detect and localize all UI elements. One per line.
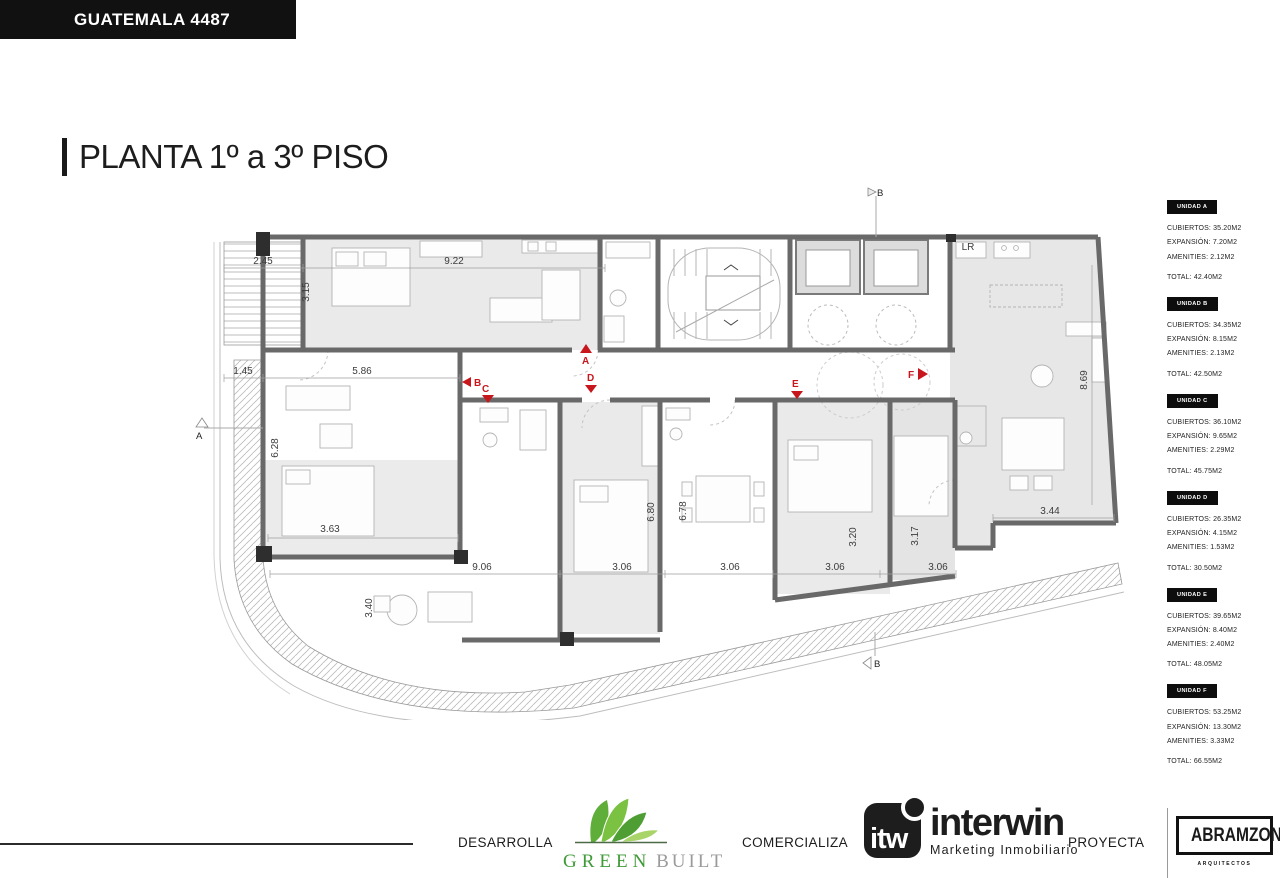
section-b-bottom: B — [874, 659, 880, 670]
interwin-logo: itw interwin Marketing Inmobiliario — [864, 803, 1079, 858]
unit-badge: UNIDAD D — [1167, 491, 1218, 505]
section-a-left: A — [196, 431, 203, 442]
unit-expansion: EXPANSIÓN: 9.65M2 — [1167, 430, 1272, 444]
dim-label: 3.06 — [825, 562, 845, 573]
dim-label: 3.17 — [910, 526, 921, 546]
unit-badge: UNIDAD A — [1167, 200, 1217, 214]
marker-e: E — [792, 379, 799, 390]
plan-sheet: { "header": { "address": "GUATEMALA 4487… — [0, 0, 1280, 878]
unit-expansion: EXPANSIÓN: 8.15M2 — [1167, 333, 1272, 347]
dim-label: 3.20 — [848, 527, 859, 547]
unit-expansion: EXPANSIÓN: 7.20M2 — [1167, 236, 1272, 250]
abramzon-name: ABRAMZON — [1191, 825, 1280, 847]
unit-badge: UNIDAD B — [1167, 297, 1218, 311]
unit-cubiertos: CUBIERTOS: 39.65M2 — [1167, 610, 1272, 624]
dim-label: 3.44 — [1040, 506, 1060, 517]
greenbuilt-logo: GREEN BUILT — [563, 796, 728, 873]
unit-total: TOTAL: 48.05M2 — [1167, 661, 1272, 668]
floor-plan-svg: 2.45 9.22 3.15 1.45 5.86 6.28 3.63 3.40 … — [190, 180, 1150, 720]
sheet-title-wrap: PLANTA 1º a 3º PISO — [62, 138, 388, 176]
footer-divider — [1167, 808, 1168, 878]
project-address: GUATEMALA 4487 — [0, 10, 230, 30]
unit-block-b: UNIDAD B CUBIERTOS: 34.35M2 EXPANSIÓN: 8… — [1167, 292, 1272, 378]
unit-cubiertos: CUBIERTOS: 53.25M2 — [1167, 706, 1272, 720]
marker-f: F — [908, 370, 914, 381]
unit-amenities: AMENITIES: 1.53M2 — [1167, 541, 1272, 555]
unit-badge: UNIDAD E — [1167, 588, 1217, 602]
unit-expansion: EXPANSIÓN: 8.40M2 — [1167, 624, 1272, 638]
elevators — [796, 240, 930, 418]
dim-label: 6.80 — [646, 502, 657, 522]
interwin-name: interwin — [930, 803, 1079, 843]
itw-dot-icon — [901, 794, 928, 821]
abramzon-box: ABRAMZON — [1176, 816, 1273, 855]
proyecta-label: PROYECTA — [1068, 835, 1144, 850]
desarrolla-label: DESARROLLA — [458, 835, 553, 850]
floor-plan: 2.45 9.22 3.15 1.45 5.86 6.28 3.63 3.40 … — [190, 180, 1150, 720]
unit-amenities: AMENITIES: 2.13M2 — [1167, 347, 1272, 361]
abramzon-subtitle: ARQUITECTOS — [1176, 861, 1273, 867]
interwin-tagline: Marketing Inmobiliario — [930, 843, 1079, 857]
unit-amenities: AMENITIES: 2.40M2 — [1167, 638, 1272, 652]
unit-badge: UNIDAD F — [1167, 684, 1217, 698]
built-word: BUILT — [656, 851, 725, 872]
marker-a: A — [582, 356, 589, 367]
unit-total: TOTAL: 42.40M2 — [1167, 274, 1272, 281]
abramzon-logo: ABRAMZON ARQUITECTOS — [1176, 816, 1273, 867]
sheet-title: PLANTA 1º a 3º PISO — [79, 138, 388, 176]
itw-icon: itw — [864, 803, 921, 858]
dim-label: 6.78 — [678, 501, 689, 521]
unit-block-f: UNIDAD F CUBIERTOS: 53.25M2 EXPANSIÓN: 1… — [1167, 679, 1272, 765]
unit-area-sidebar: UNIDAD A CUBIERTOS: 35.20M2 EXPANSIÓN: 7… — [1167, 195, 1272, 776]
unit-cubiertos: CUBIERTOS: 35.20M2 — [1167, 222, 1272, 236]
unit-block-d: UNIDAD D CUBIERTOS: 26.35M2 EXPANSIÓN: 4… — [1167, 486, 1272, 572]
unit-cubiertos: CUBIERTOS: 26.35M2 — [1167, 513, 1272, 527]
dim-label: 3.15 — [301, 282, 312, 302]
unit-block-a: UNIDAD A CUBIERTOS: 35.20M2 EXPANSIÓN: 7… — [1167, 195, 1272, 281]
dim-label: 1.45 — [233, 366, 253, 377]
unit-amenities: AMENITIES: 3.33M2 — [1167, 735, 1272, 749]
marker-d: D — [587, 373, 594, 384]
unit-total: TOTAL: 42.50M2 — [1167, 371, 1272, 378]
dim-label: 6.28 — [270, 438, 281, 458]
green-word: GREEN — [563, 851, 651, 872]
unit-expansion: EXPANSIÓN: 13.30M2 — [1167, 721, 1272, 735]
stair-core — [668, 248, 780, 340]
unit-badge: UNIDAD C — [1167, 394, 1218, 408]
footer-rule — [0, 843, 413, 845]
interwin-wordmark: interwin Marketing Inmobiliario — [930, 803, 1079, 857]
dim-label: 9.22 — [444, 256, 464, 267]
greenbuilt-wordmark: GREEN BUILT — [563, 851, 728, 873]
greenbuilt-leaves-icon — [563, 796, 683, 844]
dim-label: 3.06 — [720, 562, 740, 573]
project-address-banner: GUATEMALA 4487 — [0, 0, 296, 39]
unit-total: TOTAL: 66.55M2 — [1167, 758, 1272, 765]
dim-label: 3.63 — [320, 524, 340, 535]
comercializa-label: COMERCIALIZA — [742, 835, 848, 850]
marker-c: C — [482, 384, 489, 395]
unit-total: TOTAL: 45.75M2 — [1167, 468, 1272, 475]
title-accent-bar — [62, 138, 67, 176]
unit-expansion: EXPANSIÓN: 4.15M2 — [1167, 527, 1272, 541]
dim-label: 3.06 — [928, 562, 948, 573]
unit-block-c: UNIDAD C CUBIERTOS: 36.10M2 EXPANSIÓN: 9… — [1167, 389, 1272, 475]
unit-cubiertos: CUBIERTOS: 36.10M2 — [1167, 416, 1272, 430]
closet-label: LR — [962, 242, 975, 253]
dim-label: 8.69 — [1079, 370, 1090, 390]
dim-label: 2.45 — [253, 256, 273, 267]
dim-label: 3.40 — [364, 598, 375, 618]
itw-abbr: itw — [870, 823, 907, 856]
unit-total: TOTAL: 30.50M2 — [1167, 565, 1272, 572]
unit-cubiertos: CUBIERTOS: 34.35M2 — [1167, 319, 1272, 333]
dim-label: 5.86 — [352, 366, 372, 377]
unit-block-e: UNIDAD E CUBIERTOS: 39.65M2 EXPANSIÓN: 8… — [1167, 583, 1272, 669]
dim-label: 3.06 — [612, 562, 632, 573]
unit-amenities: AMENITIES: 2.29M2 — [1167, 444, 1272, 458]
marker-b: B — [474, 378, 481, 389]
dim-label: 9.06 — [472, 562, 492, 573]
unit-amenities: AMENITIES: 2.12M2 — [1167, 251, 1272, 265]
section-b-top: B — [877, 188, 883, 199]
